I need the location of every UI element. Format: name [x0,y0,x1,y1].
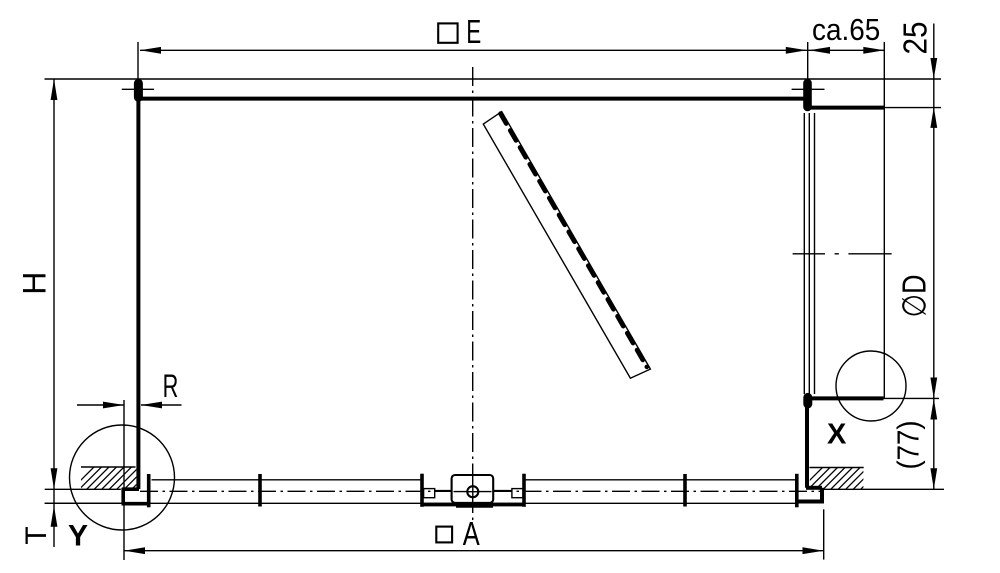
svg-text:E: E [466,13,481,50]
svg-text:T: T [20,526,53,544]
svg-text:25: 25 [897,21,934,54]
svg-text:H: H [17,272,53,295]
svg-text:R: R [163,368,179,404]
svg-text:ca.65: ca.65 [812,13,880,48]
svg-text:∅D: ∅D [897,274,933,317]
svg-text:Y: Y [68,520,88,553]
svg-text:A: A [463,516,480,553]
svg-text:(77): (77) [891,420,926,469]
svg-text:X: X [827,419,847,451]
